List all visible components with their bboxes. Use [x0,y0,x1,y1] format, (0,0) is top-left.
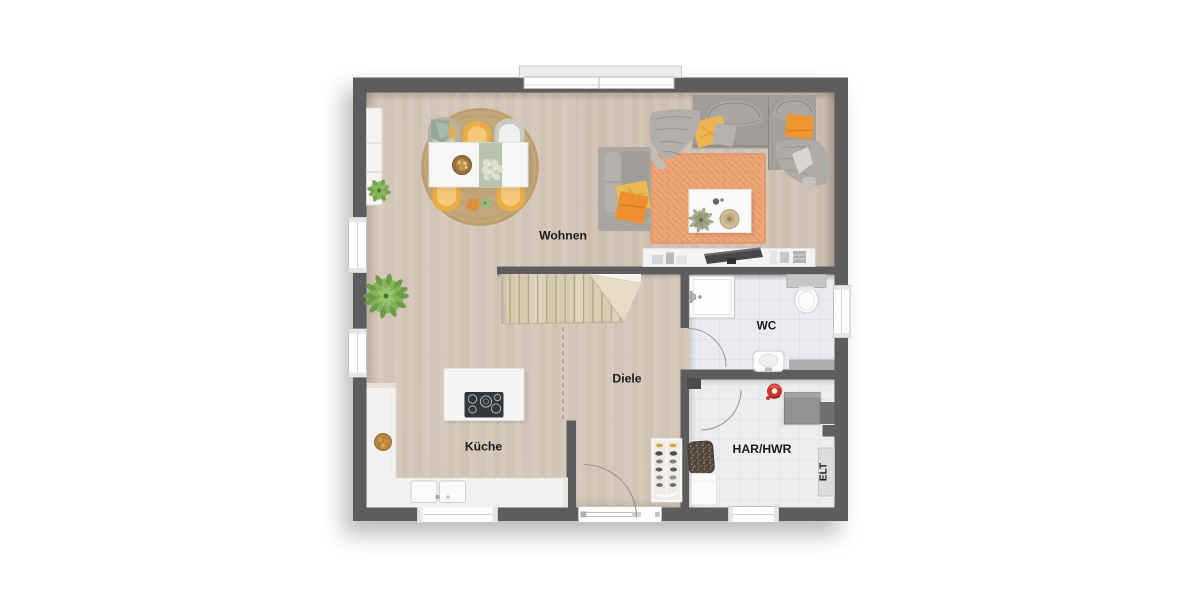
svg-text:Küche: Küche [465,440,502,454]
svg-text:Wohnen: Wohnen [539,229,587,243]
svg-text:WC: WC [757,319,777,333]
svg-text:Diele: Diele [612,372,641,386]
svg-text:HAR/HWR: HAR/HWR [733,442,792,456]
svg-text:ELT: ELT [819,463,830,481]
